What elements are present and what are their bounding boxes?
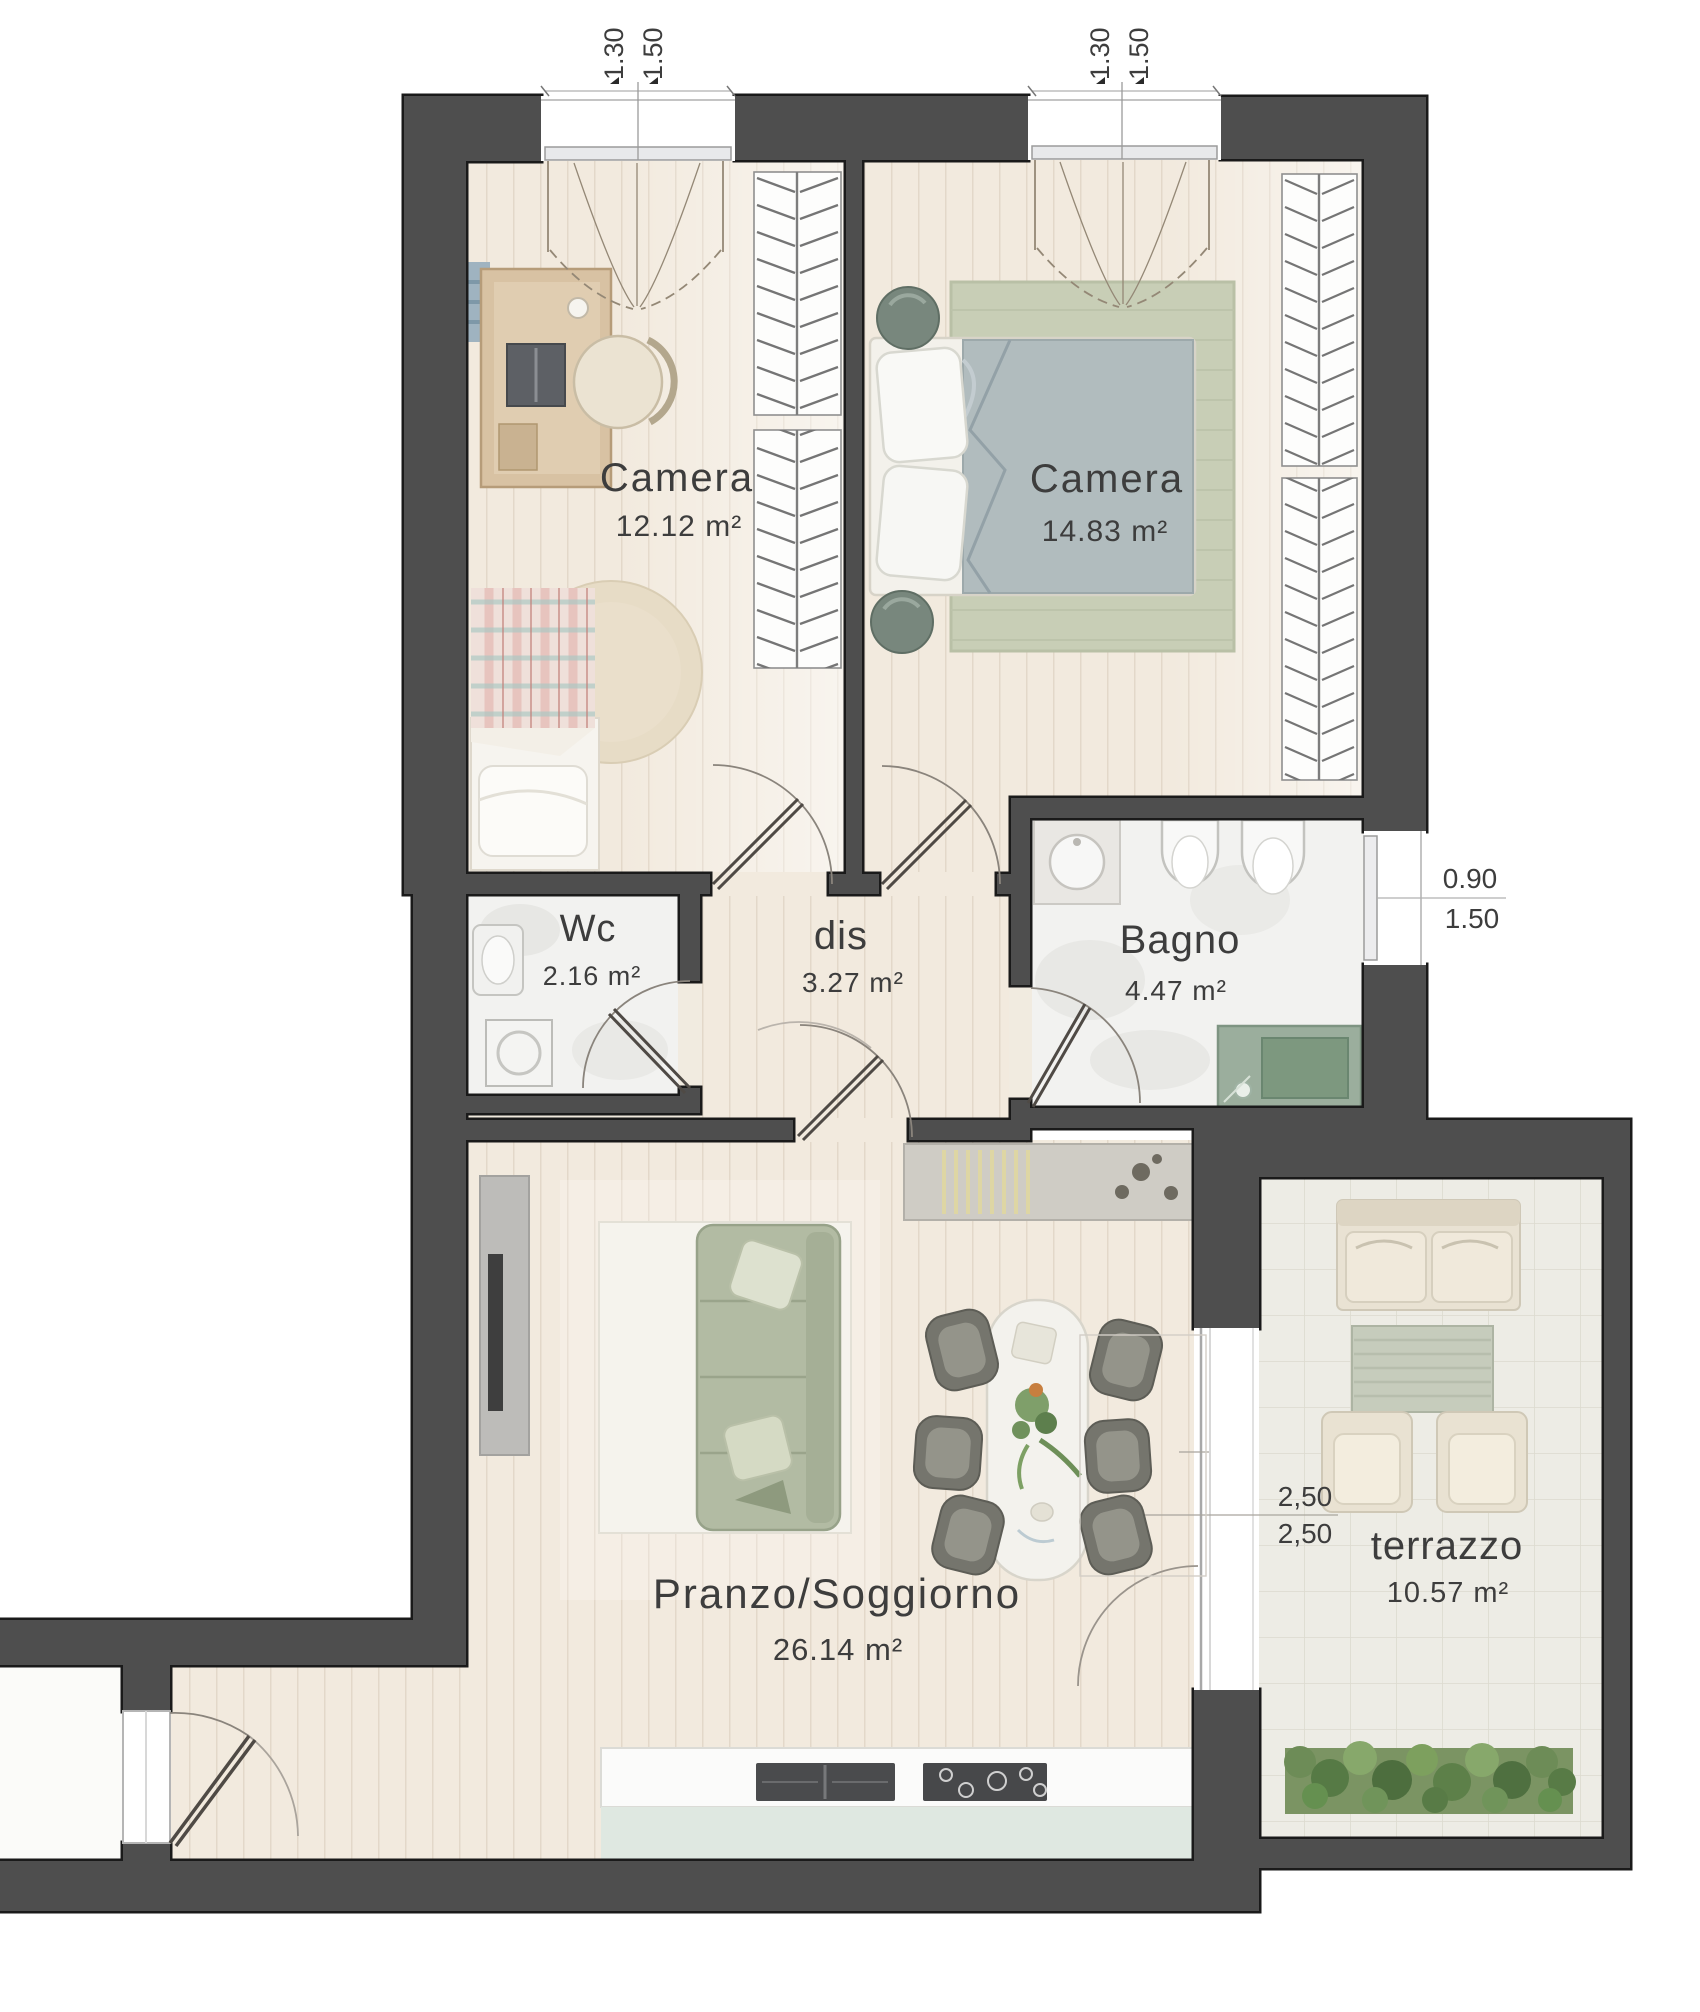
svg-text:0.90: 0.90 [1443, 863, 1498, 894]
svg-text:26.14 m²: 26.14 m² [773, 1632, 903, 1667]
svg-text:Bagno: Bagno [1120, 918, 1241, 962]
svg-text:Camera: Camera [1030, 457, 1184, 501]
svg-text:2.16 m²: 2.16 m² [543, 961, 642, 991]
svg-text:2,50: 2,50 [1278, 1518, 1333, 1549]
svg-text:1.50: 1.50 [1445, 903, 1500, 934]
svg-text:10.57 m²: 10.57 m² [1387, 1577, 1509, 1609]
svg-text:Wc: Wc [560, 908, 617, 950]
svg-text:1.50: 1.50 [1124, 27, 1154, 80]
svg-text:3.27 m²: 3.27 m² [802, 967, 904, 998]
svg-text:terrazzo: terrazzo [1371, 1524, 1524, 1568]
svg-text:12.12 m²: 12.12 m² [616, 510, 742, 543]
svg-text:1.30: 1.30 [599, 27, 629, 80]
svg-text:dis: dis [814, 914, 868, 958]
svg-text:14.83 m²: 14.83 m² [1042, 515, 1168, 548]
svg-text:Pranzo/Soggiorno: Pranzo/Soggiorno [653, 1570, 1021, 1617]
svg-text:4.47 m²: 4.47 m² [1125, 975, 1227, 1006]
svg-text:1.30: 1.30 [1085, 27, 1115, 80]
svg-text:1.50: 1.50 [638, 27, 668, 80]
svg-text:2,50: 2,50 [1278, 1481, 1333, 1512]
svg-text:Camera: Camera [600, 456, 754, 500]
